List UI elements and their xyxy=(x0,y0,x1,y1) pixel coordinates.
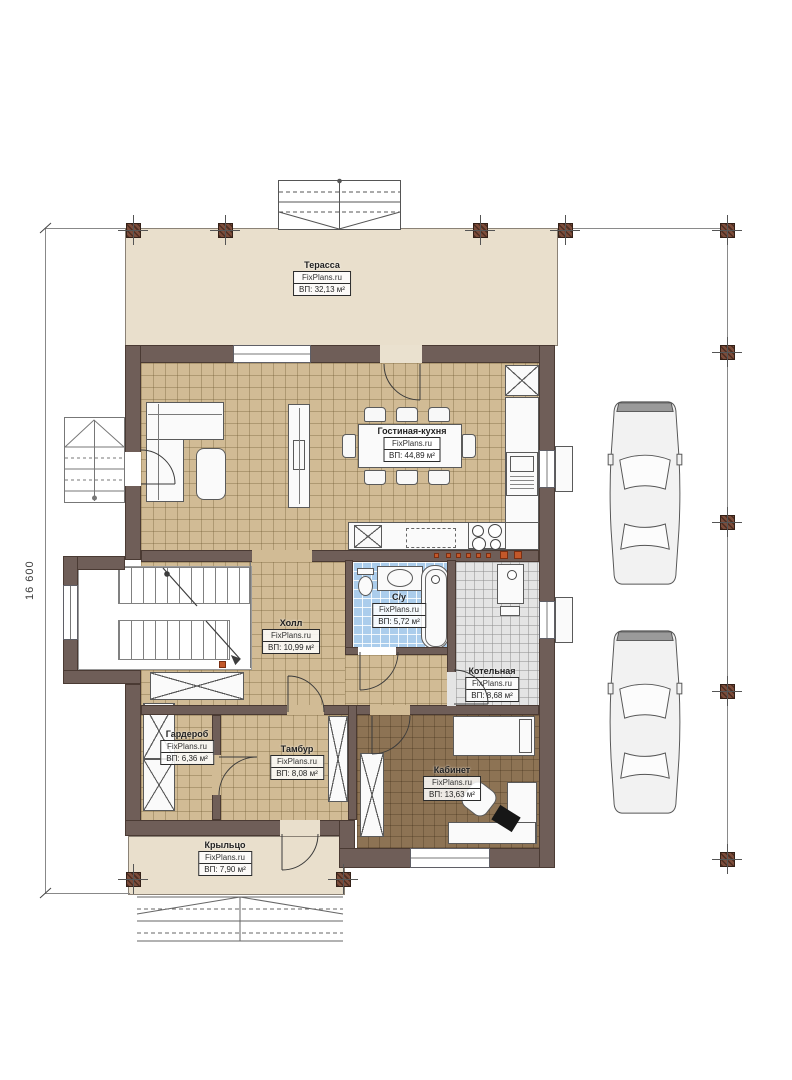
wall-west-lower xyxy=(125,684,141,836)
boiler-door-opening xyxy=(447,672,456,706)
porch-door-opening xyxy=(280,820,320,836)
watermark: FixPlans.ru xyxy=(294,272,350,284)
oven-vent-grill xyxy=(510,476,534,492)
room-info-box: FixPlans.ru ВП: 6,36 м² xyxy=(160,740,214,765)
watermark: FixPlans.ru xyxy=(373,604,425,616)
room-label-porch: Крыльцо FixPlans.ru ВП: 7,90 м² xyxy=(198,840,252,877)
column-marker xyxy=(473,223,488,238)
room-area: ВП: 32,13 м² xyxy=(294,284,350,295)
bathtub-drain xyxy=(431,575,440,584)
room-label-terrace: Терасса FixPlans.ru ВП: 32,13 м² xyxy=(293,260,351,297)
room-area: ВП: 5,72 м² xyxy=(373,616,425,627)
oven-door xyxy=(510,456,534,472)
column-marker xyxy=(126,223,141,238)
coffee-table xyxy=(196,448,226,500)
room-name: Гостиная-кухня xyxy=(378,426,447,436)
room-name: Гардероб xyxy=(160,729,214,739)
room-info-box: FixPlans.ru ВП: 8,08 м² xyxy=(270,755,324,780)
understairs-closet xyxy=(150,672,244,700)
car-top-view xyxy=(607,398,683,588)
wardrobe-closet xyxy=(143,759,175,811)
car-top-view xyxy=(607,627,683,817)
sofa-backrest-line xyxy=(158,404,159,500)
hall-living-opening xyxy=(252,550,312,562)
room-name: С/у xyxy=(372,592,426,602)
room-name: Кабинет xyxy=(423,765,481,775)
room-name: Терасса xyxy=(293,260,351,270)
column-marker xyxy=(720,852,735,867)
office-bed-pillow xyxy=(519,719,532,753)
room-info-box: FixPlans.ru ВП: 5,72 м² xyxy=(372,603,426,628)
room-name: Котельная xyxy=(465,666,519,676)
stove-burner xyxy=(472,525,484,537)
kitchen-sink xyxy=(354,525,382,548)
wall-bath-west xyxy=(345,560,353,655)
window-south-office xyxy=(410,848,490,868)
stove-burner xyxy=(472,537,486,551)
room-label-living: Гостиная-кухня FixPlans.ru ВП: 44,89 м² xyxy=(378,426,447,463)
wall-south-left xyxy=(125,820,355,836)
sofa-seat-line xyxy=(148,414,222,415)
room-area: ВП: 44,89 м² xyxy=(384,450,440,461)
canopy-symbol xyxy=(279,179,401,229)
fridge xyxy=(505,365,539,396)
boiler-base xyxy=(500,606,520,616)
column-marker xyxy=(720,345,735,360)
terrace-door-opening xyxy=(380,345,422,363)
stove-burner xyxy=(488,524,502,538)
window-east-living xyxy=(539,450,555,488)
office-desk-horizontal xyxy=(448,822,536,844)
watermark: FixPlans.ru xyxy=(161,741,213,753)
tambour-door-opening xyxy=(287,705,324,715)
window-north xyxy=(233,345,311,363)
dining-chair xyxy=(428,470,450,485)
stairs-lower-flight xyxy=(118,620,230,660)
room-area: ВП: 10,99 м² xyxy=(263,642,319,653)
room-label-boiler: Котельная FixPlans.ru ВП: 8,68 м² xyxy=(465,666,519,703)
dining-chair xyxy=(364,470,386,485)
watermark: FixPlans.ru xyxy=(424,777,480,789)
column-marker xyxy=(126,872,141,887)
room-label-hall: Холл FixPlans.ru ВП: 10,99 м² xyxy=(262,618,320,655)
dishwasher-dashed xyxy=(406,528,456,548)
dining-chair xyxy=(342,434,356,458)
boiler-dial xyxy=(507,570,517,580)
column-marker xyxy=(336,872,351,887)
porch-steps xyxy=(137,897,343,941)
room-info-box: FixPlans.ru ВП: 44,89 м² xyxy=(383,437,441,462)
side-steps xyxy=(65,418,125,503)
dining-chair xyxy=(364,407,386,422)
dimension-label: 16 600 xyxy=(24,520,36,600)
room-info-box: FixPlans.ru ВП: 10,99 м² xyxy=(262,629,320,654)
room-area: ВП: 8,68 м² xyxy=(466,690,518,701)
wall-hall-south xyxy=(141,705,539,715)
dining-chair xyxy=(396,470,418,485)
office-closet xyxy=(360,753,384,837)
room-label-tambour: Тамбур FixPlans.ru ВП: 8,08 м² xyxy=(270,744,324,781)
window-sill-east-living xyxy=(555,446,573,492)
watermark: FixPlans.ru xyxy=(271,756,323,768)
stairs-upper-flight xyxy=(118,567,250,604)
room-info-box: FixPlans.ru ВП: 7,90 м² xyxy=(198,851,252,876)
room-info-box: FixPlans.ru ВП: 8,68 м² xyxy=(465,677,519,702)
watermark: FixPlans.ru xyxy=(199,852,251,864)
column-marker xyxy=(558,223,573,238)
room-label-office: Кабинет FixPlans.ru ВП: 13,63 м² xyxy=(423,765,481,802)
window-annex-west xyxy=(63,585,78,640)
room-name: Холл xyxy=(262,618,320,628)
hall-floor-extension xyxy=(345,655,456,705)
dining-chair xyxy=(462,434,476,458)
tv-stand-line xyxy=(299,408,300,504)
window-sill-east-boiler xyxy=(555,597,573,643)
floor-plan-canvas: 16 600 Терасса FixPlans.ru ВП: 32,13 м² … xyxy=(0,0,792,1080)
tambour-closet xyxy=(328,716,348,802)
room-name: Крыльцо xyxy=(198,840,252,850)
column-marker xyxy=(218,223,233,238)
office-door-opening xyxy=(370,705,410,715)
watermark: FixPlans.ru xyxy=(384,438,440,450)
wall-annex-bottom xyxy=(63,670,141,684)
room-area: ВП: 13,63 м² xyxy=(424,789,480,800)
room-area: ВП: 8,08 м² xyxy=(271,768,323,779)
column-marker xyxy=(720,684,735,699)
room-label-wardrobe: Гардероб FixPlans.ru ВП: 6,36 м² xyxy=(160,729,214,766)
room-label-bathroom: С/у FixPlans.ru ВП: 5,72 м² xyxy=(372,592,426,629)
window-east-boiler xyxy=(539,601,555,639)
wall-tambour-east xyxy=(348,705,357,820)
column-marker xyxy=(720,223,735,238)
room-info-box: FixPlans.ru ВП: 32,13 м² xyxy=(293,271,351,296)
dining-chair xyxy=(396,407,418,422)
room-name: Тамбур xyxy=(270,744,324,754)
room-info-box: FixPlans.ru ВП: 13,63 м² xyxy=(423,776,481,801)
wall-north xyxy=(125,345,555,363)
washbasin xyxy=(387,569,413,587)
room-area: ВП: 6,36 м² xyxy=(161,753,213,764)
bathroom-door-opening xyxy=(358,647,396,655)
toilet-tank xyxy=(357,568,374,575)
column-marker xyxy=(720,515,735,530)
toilet-bowl xyxy=(358,576,373,596)
room-area: ВП: 7,90 м² xyxy=(199,864,251,875)
watermark: FixPlans.ru xyxy=(466,678,518,690)
stove-burner xyxy=(490,539,501,550)
side-door-opening xyxy=(125,452,141,486)
stairs-edge-line xyxy=(250,562,251,668)
watermark: FixPlans.ru xyxy=(263,630,319,642)
dining-chair xyxy=(428,407,450,422)
